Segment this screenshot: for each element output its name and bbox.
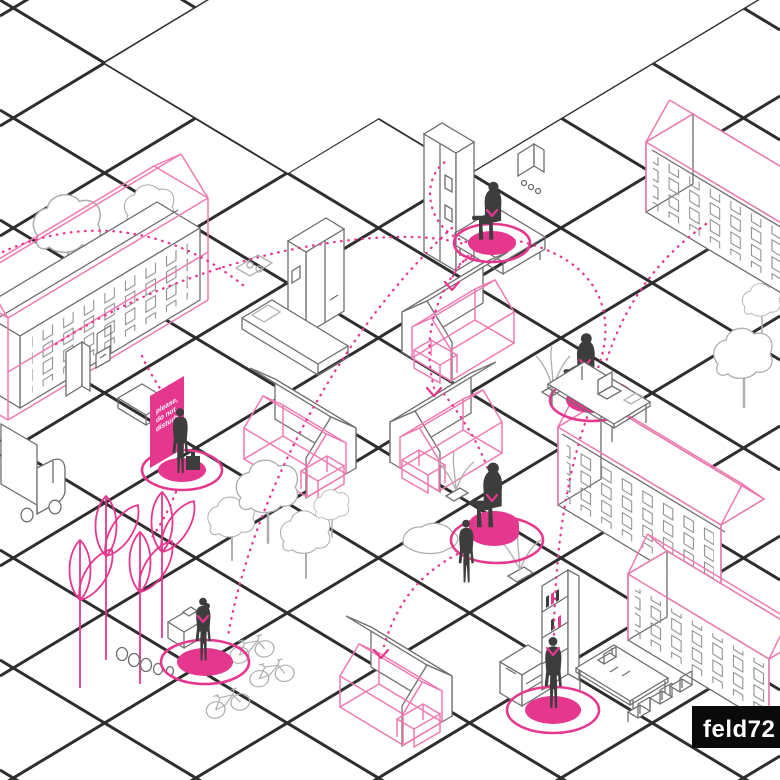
house-infill-2 [390,362,502,493]
bicycles [202,633,296,721]
potted-plant [438,452,474,501]
delivery-truck [1,424,65,522]
parcel-station [66,342,110,396]
building-left [0,154,208,420]
isometric-scene: please, do not disturb feld72 [0,0,780,780]
pouf [469,511,519,546]
logo-text: feld72 [703,716,775,743]
kitchenette [518,144,544,194]
illustration-canvas: please, do not disturb feld72 [0,0,780,780]
logo-feld72: feld72 [692,706,780,748]
tree-icon [714,328,772,408]
rock [403,523,458,553]
bedroom-scene [236,218,348,375]
